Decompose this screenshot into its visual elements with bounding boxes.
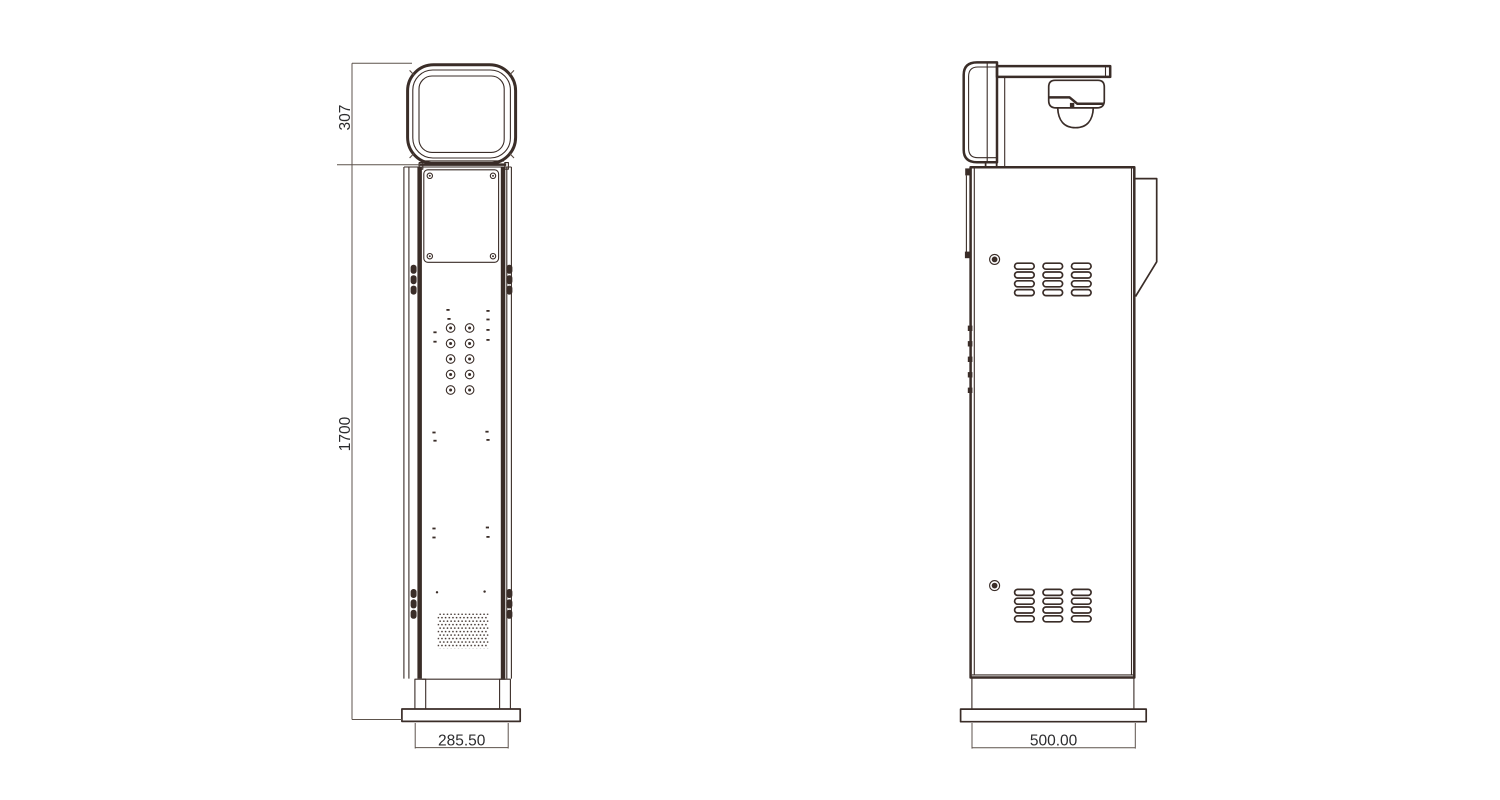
- monitor-mount-panel: [424, 170, 499, 262]
- cabinet-side: [965, 167, 1157, 677]
- plinth: [972, 678, 1134, 710]
- right-leg: [500, 679, 511, 709]
- side-view: [961, 62, 1157, 721]
- right-edge-strip: [501, 167, 506, 679]
- camera-dome: [1058, 108, 1094, 128]
- front-view: [402, 65, 520, 722]
- dimension-overall-height: 1700: [337, 416, 354, 451]
- display-head-frame: [413, 70, 511, 158]
- lock-bolt-upper: [990, 254, 1000, 264]
- bezel-corner-seams: [410, 70, 514, 158]
- speaker-grille: [438, 614, 489, 649]
- pedestal-column: [404, 167, 513, 679]
- front-base-plate: [402, 709, 520, 721]
- front-device-housing: [1136, 179, 1157, 297]
- camera-arm-assembly: [997, 66, 1110, 167]
- drawing-canvas: 307 1700 285.50 500.00: [0, 0, 1500, 800]
- camera-arm: [997, 66, 1110, 77]
- marker-dashes: [432, 309, 489, 594]
- hinge-knuckles-upper: [411, 265, 513, 295]
- display-head-side-profile: [964, 62, 997, 167]
- side-base-plate: [961, 709, 1147, 722]
- dimension-head-height: 307: [337, 105, 354, 131]
- left-leg: [415, 679, 426, 709]
- front-base: [402, 679, 520, 721]
- left-edge-strip: [417, 167, 422, 679]
- side-base: [961, 678, 1147, 722]
- vent-grille-upper: [1015, 263, 1092, 295]
- display-head-front: [408, 65, 516, 169]
- dimension-side-depth: 500.00: [1030, 733, 1078, 750]
- technical-drawing-page: 307 1700 285.50 500.00: [0, 0, 1500, 800]
- camera-latch: [1070, 103, 1074, 107]
- dimension-front-width: 285.50: [438, 733, 486, 750]
- cabinet-outline: [971, 167, 1135, 677]
- dome-camera: [1049, 80, 1105, 127]
- vent-grille-lower: [1015, 589, 1092, 621]
- vesa-bolt-pattern: [446, 324, 474, 395]
- head-side-inner-line: [969, 67, 997, 158]
- camera-trim-stripe: [1049, 97, 1103, 103]
- display-screen: [419, 76, 504, 152]
- lock-bolt-lower: [990, 581, 1000, 591]
- hinge-cap-top: [965, 168, 971, 175]
- mount-panel-screws: [427, 173, 496, 259]
- hinge-cap-bottom: [965, 252, 970, 259]
